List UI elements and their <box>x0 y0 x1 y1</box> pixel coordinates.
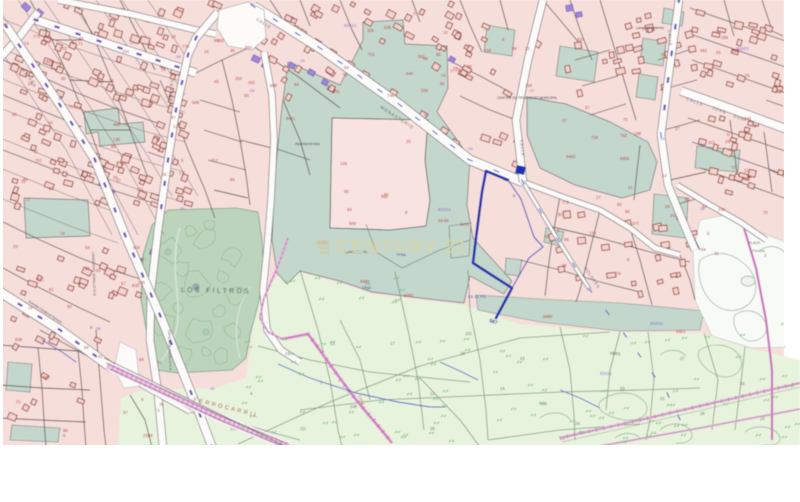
svg-text:TF52: TF52 <box>362 285 372 290</box>
svg-text:130: 130 <box>113 137 121 142</box>
svg-text:93431: 93431 <box>438 207 451 212</box>
svg-text:84: 84 <box>294 82 299 87</box>
svg-text:19: 19 <box>120 161 125 166</box>
svg-text:402: 402 <box>248 80 256 85</box>
svg-text:518: 518 <box>484 48 492 53</box>
svg-text:9463: 9463 <box>676 329 686 334</box>
svg-text:33: 33 <box>620 386 625 391</box>
svg-text:9470: 9470 <box>460 222 470 227</box>
svg-text:992: 992 <box>381 194 389 199</box>
svg-text:9480: 9480 <box>360 279 370 284</box>
svg-text:56: 56 <box>148 433 153 438</box>
svg-text:74: 74 <box>441 73 446 78</box>
svg-text:85: 85 <box>111 144 116 149</box>
svg-text:28: 28 <box>85 266 90 271</box>
svg-text:29: 29 <box>13 244 18 249</box>
svg-text:Parada: Parada <box>752 248 766 253</box>
svg-text:65: 65 <box>344 189 349 194</box>
svg-text:10: 10 <box>660 136 665 141</box>
svg-text:73: 73 <box>179 171 184 176</box>
svg-text:11: 11 <box>103 168 108 173</box>
svg-text:762: 762 <box>620 133 628 138</box>
svg-text:22: 22 <box>744 168 749 173</box>
svg-text:93441: 93441 <box>344 23 357 28</box>
svg-text:508: 508 <box>15 337 23 342</box>
svg-text:9441: 9441 <box>286 116 296 121</box>
svg-text:86: 86 <box>625 209 630 214</box>
svg-text:809: 809 <box>270 83 278 88</box>
svg-text:82: 82 <box>157 360 162 365</box>
svg-text:754: 754 <box>122 49 130 54</box>
svg-text:76: 76 <box>159 402 164 407</box>
svg-text:93433: 93433 <box>650 321 663 326</box>
svg-text:55: 55 <box>96 326 101 331</box>
svg-text:230: 230 <box>718 207 726 212</box>
svg-text:770: 770 <box>182 44 190 49</box>
svg-text:51: 51 <box>72 40 77 45</box>
svg-text:15: 15 <box>285 351 290 356</box>
svg-text:22: 22 <box>525 46 530 51</box>
svg-text:94: 94 <box>344 65 349 70</box>
svg-text:46: 46 <box>12 112 17 117</box>
svg-text:321: 321 <box>37 277 45 282</box>
svg-text:08: 08 <box>176 54 181 59</box>
svg-text:96: 96 <box>214 38 219 43</box>
svg-text:16: 16 <box>204 49 209 54</box>
svg-text:87: 87 <box>585 105 590 110</box>
svg-text:591: 591 <box>418 54 426 59</box>
svg-text:773: 773 <box>589 231 597 236</box>
svg-text:82: 82 <box>558 212 563 217</box>
svg-text:26: 26 <box>562 263 567 268</box>
svg-text:835: 835 <box>132 283 140 288</box>
svg-text:17: 17 <box>390 341 395 346</box>
svg-text:12: 12 <box>173 124 178 129</box>
svg-text:15: 15 <box>300 58 305 63</box>
svg-text:93453: 93453 <box>736 46 749 51</box>
svg-text:748: 748 <box>387 93 395 98</box>
svg-text:21: 21 <box>660 396 665 401</box>
svg-text:93421: 93421 <box>600 371 612 376</box>
svg-text:837: 837 <box>577 37 585 42</box>
svg-text:33: 33 <box>180 206 185 211</box>
svg-text:84: 84 <box>84 345 89 350</box>
svg-text:31: 31 <box>21 179 26 184</box>
svg-text:775: 775 <box>562 200 570 205</box>
svg-text:99: 99 <box>512 46 517 51</box>
svg-text:101: 101 <box>465 331 473 336</box>
svg-text:9463: 9463 <box>566 154 576 159</box>
svg-text:64: 64 <box>347 207 352 212</box>
svg-text:27: 27 <box>675 126 680 131</box>
svg-text:55: 55 <box>716 50 721 55</box>
svg-text:77: 77 <box>453 66 458 71</box>
svg-text:TRASERA: TRASERA <box>168 80 174 106</box>
svg-text:31: 31 <box>714 251 719 256</box>
svg-text:52: 52 <box>343 72 348 77</box>
svg-text:34: 34 <box>109 78 114 83</box>
svg-text:751: 751 <box>368 52 376 57</box>
svg-text:PLAZA: PLAZA <box>748 241 760 245</box>
svg-text:280: 280 <box>721 35 729 40</box>
svg-text:111: 111 <box>300 426 307 431</box>
svg-text:824: 824 <box>46 59 54 64</box>
svg-text:19: 19 <box>161 67 166 72</box>
svg-text:74: 74 <box>60 231 65 236</box>
svg-text:100: 100 <box>350 404 358 409</box>
svg-text:37: 37 <box>116 178 121 183</box>
svg-text:98: 98 <box>564 237 569 242</box>
svg-text:21: 21 <box>16 399 21 404</box>
svg-text:185: 185 <box>138 280 146 285</box>
svg-text:34: 34 <box>665 204 670 209</box>
svg-text:50: 50 <box>67 304 72 309</box>
svg-text:37: 37 <box>49 186 54 191</box>
svg-text:160: 160 <box>540 401 548 406</box>
svg-text:54: 54 <box>85 245 90 250</box>
svg-text:CENTRO DE PRODUCCIO MUNICIPAL: CENTRO DE PRODUCCIO MUNICIPAL <box>497 96 558 100</box>
svg-text:24: 24 <box>575 421 580 426</box>
svg-text:804: 804 <box>133 245 141 250</box>
svg-text:45: 45 <box>214 79 219 84</box>
svg-text:18: 18 <box>460 351 465 356</box>
svg-text:57: 57 <box>121 281 126 286</box>
svg-text:04-09: 04-09 <box>438 218 449 223</box>
svg-text:19: 19 <box>48 120 53 125</box>
svg-text:444: 444 <box>406 71 414 76</box>
svg-text:45: 45 <box>230 48 235 53</box>
svg-text:Lanzaderamiento: Lanzaderamiento <box>636 26 664 30</box>
svg-text:95: 95 <box>436 52 441 57</box>
svg-text:CENTURY 21: CENTURY 21 <box>336 236 468 258</box>
svg-text:32: 32 <box>740 381 745 386</box>
svg-text:CE 51 PG: CE 51 PG <box>468 294 486 299</box>
svg-text:984: 984 <box>245 45 253 50</box>
svg-text:25: 25 <box>140 256 145 261</box>
svg-text:23: 23 <box>520 356 525 361</box>
svg-text:74: 74 <box>616 271 621 276</box>
svg-text:201: 201 <box>670 213 678 218</box>
svg-text:75: 75 <box>745 73 750 78</box>
svg-text:9487: 9487 <box>404 293 414 298</box>
svg-text:89: 89 <box>230 177 235 182</box>
svg-text:23: 23 <box>468 146 473 151</box>
svg-text:71: 71 <box>78 41 83 46</box>
svg-text:198: 198 <box>634 131 642 136</box>
svg-text:59: 59 <box>244 93 249 98</box>
svg-text:772: 772 <box>33 34 41 39</box>
svg-text:12: 12 <box>130 40 135 45</box>
svg-text:18: 18 <box>700 206 705 211</box>
svg-text:91: 91 <box>96 268 101 273</box>
svg-text:12: 12 <box>430 391 435 396</box>
svg-text:95: 95 <box>61 76 66 81</box>
svg-text:486: 486 <box>113 122 121 127</box>
svg-text:12: 12 <box>662 173 667 178</box>
svg-text:21: 21 <box>628 185 633 190</box>
svg-text:74: 74 <box>24 41 29 46</box>
svg-text:126: 126 <box>340 161 348 166</box>
svg-text:567: 567 <box>43 375 51 380</box>
svg-text:54: 54 <box>701 247 706 252</box>
svg-text:25: 25 <box>406 139 411 144</box>
svg-text:86: 86 <box>63 428 68 433</box>
svg-text:61: 61 <box>49 287 54 292</box>
svg-text:969: 969 <box>349 221 357 226</box>
svg-text:91: 91 <box>747 174 752 179</box>
svg-text:55: 55 <box>162 172 167 177</box>
svg-text:271: 271 <box>137 187 145 192</box>
svg-text:70: 70 <box>68 104 73 109</box>
svg-text:72: 72 <box>25 197 30 202</box>
svg-text:50: 50 <box>617 202 622 207</box>
svg-text:11: 11 <box>34 149 39 154</box>
svg-text:535: 535 <box>384 25 392 30</box>
svg-text:07: 07 <box>530 88 535 93</box>
svg-text:47: 47 <box>171 115 176 120</box>
svg-text:Rbtrq: Rbtrq <box>610 351 621 356</box>
svg-text:41: 41 <box>98 354 103 359</box>
svg-text:14: 14 <box>500 386 505 391</box>
svg-text:28: 28 <box>700 411 705 416</box>
svg-text:9480: 9480 <box>543 314 553 319</box>
svg-text:13: 13 <box>290 16 295 21</box>
svg-text:37: 37 <box>562 118 567 123</box>
svg-text:781: 781 <box>333 89 341 94</box>
svg-text:04: 04 <box>250 88 255 93</box>
svg-text:377: 377 <box>632 221 640 226</box>
svg-text:717: 717 <box>211 158 219 163</box>
svg-text:72: 72 <box>731 165 736 170</box>
svg-text:703: 703 <box>60 46 68 51</box>
svg-text:26: 26 <box>430 426 435 431</box>
svg-text:75: 75 <box>763 210 768 215</box>
svg-text:Apartamentos: Apartamentos <box>295 141 320 146</box>
svg-text:96: 96 <box>467 64 472 69</box>
svg-text:18: 18 <box>171 34 176 39</box>
svg-text:27: 27 <box>680 356 685 361</box>
svg-text:9455: 9455 <box>620 156 630 161</box>
svg-text:264: 264 <box>235 76 243 81</box>
svg-text:27: 27 <box>596 195 601 200</box>
svg-text:62: 62 <box>545 234 550 239</box>
svg-text:312: 312 <box>708 140 716 145</box>
svg-text:44: 44 <box>210 386 215 391</box>
svg-text:89: 89 <box>685 197 690 202</box>
svg-text:84: 84 <box>139 357 144 362</box>
svg-text:43: 43 <box>424 112 429 117</box>
svg-text:81: 81 <box>440 81 445 86</box>
svg-text:791: 791 <box>35 158 43 163</box>
svg-text:206: 206 <box>421 88 429 93</box>
svg-text:728: 728 <box>591 135 599 140</box>
svg-text:05: 05 <box>58 96 63 101</box>
svg-text:305: 305 <box>367 28 375 33</box>
svg-text:589: 589 <box>192 100 200 105</box>
svg-text:32: 32 <box>661 52 666 57</box>
svg-text:42: 42 <box>99 79 104 84</box>
svg-text:70: 70 <box>623 117 628 122</box>
svg-text:15: 15 <box>443 30 448 35</box>
svg-text:26: 26 <box>725 139 730 144</box>
svg-text:462: 462 <box>700 48 708 53</box>
svg-text:97: 97 <box>123 410 128 415</box>
